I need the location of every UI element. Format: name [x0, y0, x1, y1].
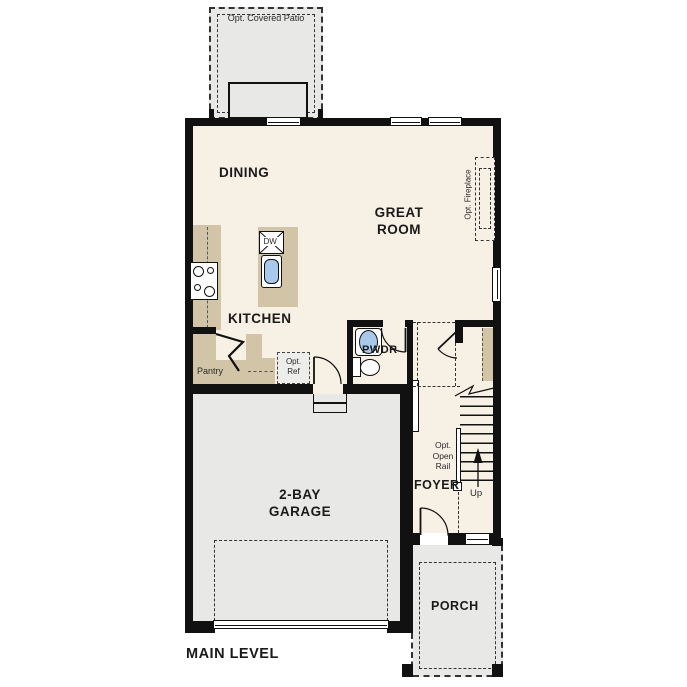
floor-plan: Opt. Covered Patio [0, 0, 687, 687]
opt-refrigerator: Opt. Ref [277, 352, 310, 384]
great-room-label-1: GREAT [369, 204, 429, 221]
wall-living-bottom-right [343, 384, 413, 394]
pantry-floor [216, 334, 246, 360]
powder-label: PWDR [362, 344, 398, 356]
wall-living-bottom-left [185, 384, 313, 394]
garage-door-outline [214, 540, 388, 621]
patio-label: Opt. Covered Patio [209, 13, 323, 23]
wall-powder-right [407, 327, 413, 384]
stairs-up-label: Up [470, 488, 482, 499]
cooktop-burner-2 [207, 267, 214, 274]
garage-label-1: 2-BAY [260, 486, 340, 503]
hall-dash-left [417, 322, 419, 386]
hall-dash-right [455, 343, 457, 386]
wall-pantry-top [193, 327, 216, 334]
wall-foyer-bottom-b [448, 533, 465, 545]
porch-post-top-right [492, 538, 503, 546]
hall-dash-bottom [413, 386, 460, 388]
opt-ref-label-2: Ref [278, 367, 309, 377]
wall-foyer-bottom-a [413, 533, 420, 545]
porch-post-bottom-right [492, 664, 503, 677]
coat-closet-shelf [482, 328, 493, 381]
garage-entry-steps [313, 394, 347, 413]
opt-open-rail-label-1: Opt. [427, 440, 459, 451]
patio-wall-tick-right [318, 109, 323, 118]
wall-powder-top-a [347, 320, 383, 327]
base-cabinet [246, 358, 275, 384]
hall-dash-top [413, 322, 455, 324]
opt-fireplace-inner [479, 168, 491, 229]
window-right [492, 267, 501, 302]
cooktop-burner-3 [194, 284, 201, 291]
garage-label: 2-BAY GARAGE [260, 486, 340, 520]
sliding-door [266, 117, 301, 126]
patio-wall-tick-left [209, 109, 214, 118]
dishwasher-label-top: DW [263, 237, 278, 246]
opt-open-rail-label: Opt. Open Rail [427, 440, 459, 472]
wall-garage-left [185, 394, 193, 633]
stair-treads [460, 396, 493, 489]
toilet-bowl [360, 359, 380, 376]
porch-post-bottom-left [402, 664, 413, 677]
porch-inner-outline [419, 562, 496, 669]
opt-open-rail-label-3: Rail [427, 461, 459, 472]
window-top-2 [428, 117, 462, 126]
island-sink-basin [264, 259, 279, 284]
cooktop-burner-4 [204, 286, 215, 297]
opt-fireplace-label: Opt. Fireplace [464, 151, 473, 239]
kitchen-label: KITCHEN [228, 311, 292, 326]
plan-title: MAIN LEVEL [186, 646, 279, 662]
dining-label: DINING [219, 165, 269, 180]
wall-closet-stub [455, 320, 463, 343]
foyer-dash-stair [458, 492, 460, 533]
great-room-label: GREAT ROOM [369, 204, 429, 238]
opt-ref-label-1: Opt. [278, 357, 309, 367]
opt-open-rail-label-2: Open [427, 451, 459, 462]
front-door-threshold [420, 533, 448, 545]
patio-landing-step [228, 82, 308, 119]
porch-label: PORCH [431, 599, 479, 613]
wall-garage-bottom-left [185, 621, 215, 633]
great-room-label-2: ROOM [369, 221, 429, 238]
window-top-1 [390, 117, 422, 126]
sidelite-window [465, 533, 490, 545]
garage-door [213, 620, 389, 629]
cooktop-burner-1 [193, 266, 204, 277]
pantry-label: Pantry [197, 366, 223, 376]
foyer-label: FOYER [414, 478, 460, 492]
garage-label-2: GARAGE [260, 503, 340, 520]
wall-powder-top-b [405, 320, 413, 327]
wall-left [185, 118, 193, 394]
